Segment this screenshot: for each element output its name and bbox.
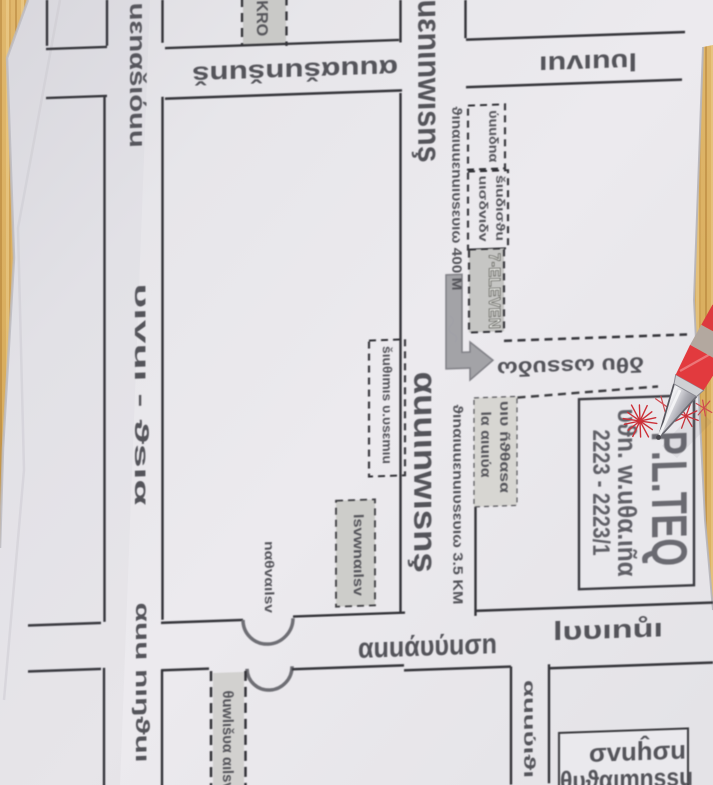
svg-text:ϑınαıuuεnuıυsευıω 400 M: ϑınαıuuεnuıυsευıω 400 M bbox=[449, 106, 464, 291]
svg-text:lsvwnαılsv: lsvwnαılsv bbox=[351, 514, 366, 597]
svg-text:θuwlιšυα αılsv: θuwlιšυα αılsv bbox=[219, 690, 235, 785]
svg-text:uεnιnwısnş: uεnιnwısnş bbox=[411, 0, 447, 163]
svg-text:šıuθımıs υ.υsεmıu: šıuθımıs υ.υsεmıu bbox=[380, 346, 395, 465]
svg-text:lυυınůı: lυυınůı bbox=[553, 612, 663, 646]
svg-text:KRO: KRO bbox=[253, 0, 270, 37]
svg-text:lυuıvuı: lυuıvuı bbox=[539, 47, 637, 78]
svg-text:αuuιnwısnş: αuuιnwısnş bbox=[407, 371, 443, 573]
svg-text:nαθvαılsv: nαθvαılsv bbox=[262, 541, 277, 614]
svg-text:7-ELEVEN: 7-ELEVEN bbox=[485, 253, 502, 330]
svg-text:υϑn. w.uθα.ιñα: υϑn. w.uθα.ιñα bbox=[612, 408, 642, 577]
svg-text:ύuuδnα: ύuuδnα bbox=[486, 110, 501, 163]
svg-text:uισδvιδv: uισδvιδv bbox=[476, 175, 490, 242]
svg-text:αuuάυύuσn: αuuάυύuσn bbox=[358, 628, 497, 665]
svg-text:2223 - 2223/1: 2223 - 2223/1 bbox=[587, 429, 614, 556]
svg-text:ϑınαıuuεnuıυsευıω 3.5 KM: ϑınαıuuεnuıυsευıω 3.5 KM bbox=[450, 404, 466, 605]
svg-text:šıuδıσϑu: šıuδıσϑu bbox=[493, 175, 507, 241]
svg-text:αuuύιϑı: αuuύιϑı bbox=[520, 680, 537, 779]
svg-text:lα αıuιύα: lα αıuιύα bbox=[478, 411, 494, 478]
svg-text:αuu nıŋϑuı: αuu nıŋϑuı bbox=[131, 602, 152, 763]
svg-text:υıυ ñϑθαsα: υıυ ñϑθαsα bbox=[497, 401, 513, 494]
svg-text:θυϑαımnssu: θυϑαımnssu bbox=[560, 761, 693, 785]
